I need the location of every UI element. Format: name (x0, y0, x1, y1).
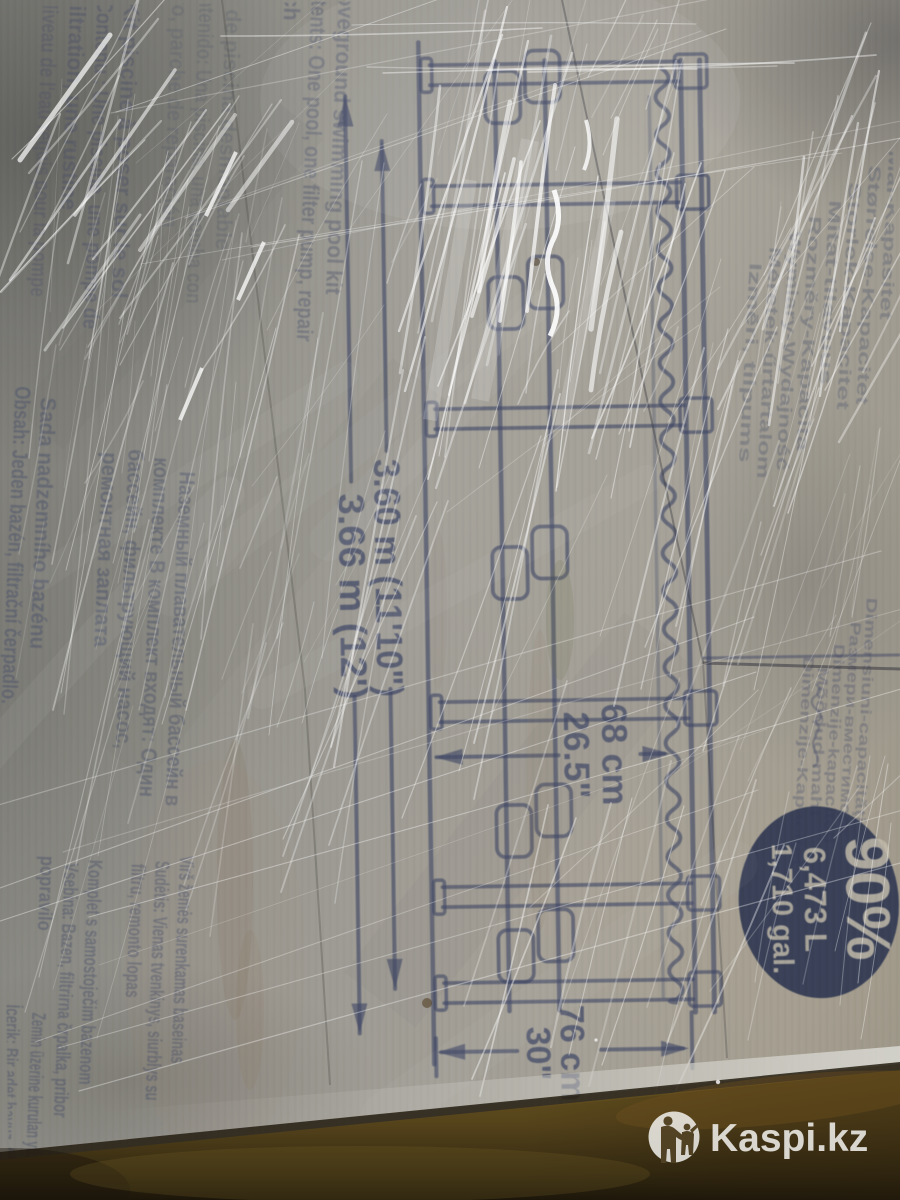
svg-text:Kaspi.kz: Kaspi.kz (710, 1117, 868, 1160)
